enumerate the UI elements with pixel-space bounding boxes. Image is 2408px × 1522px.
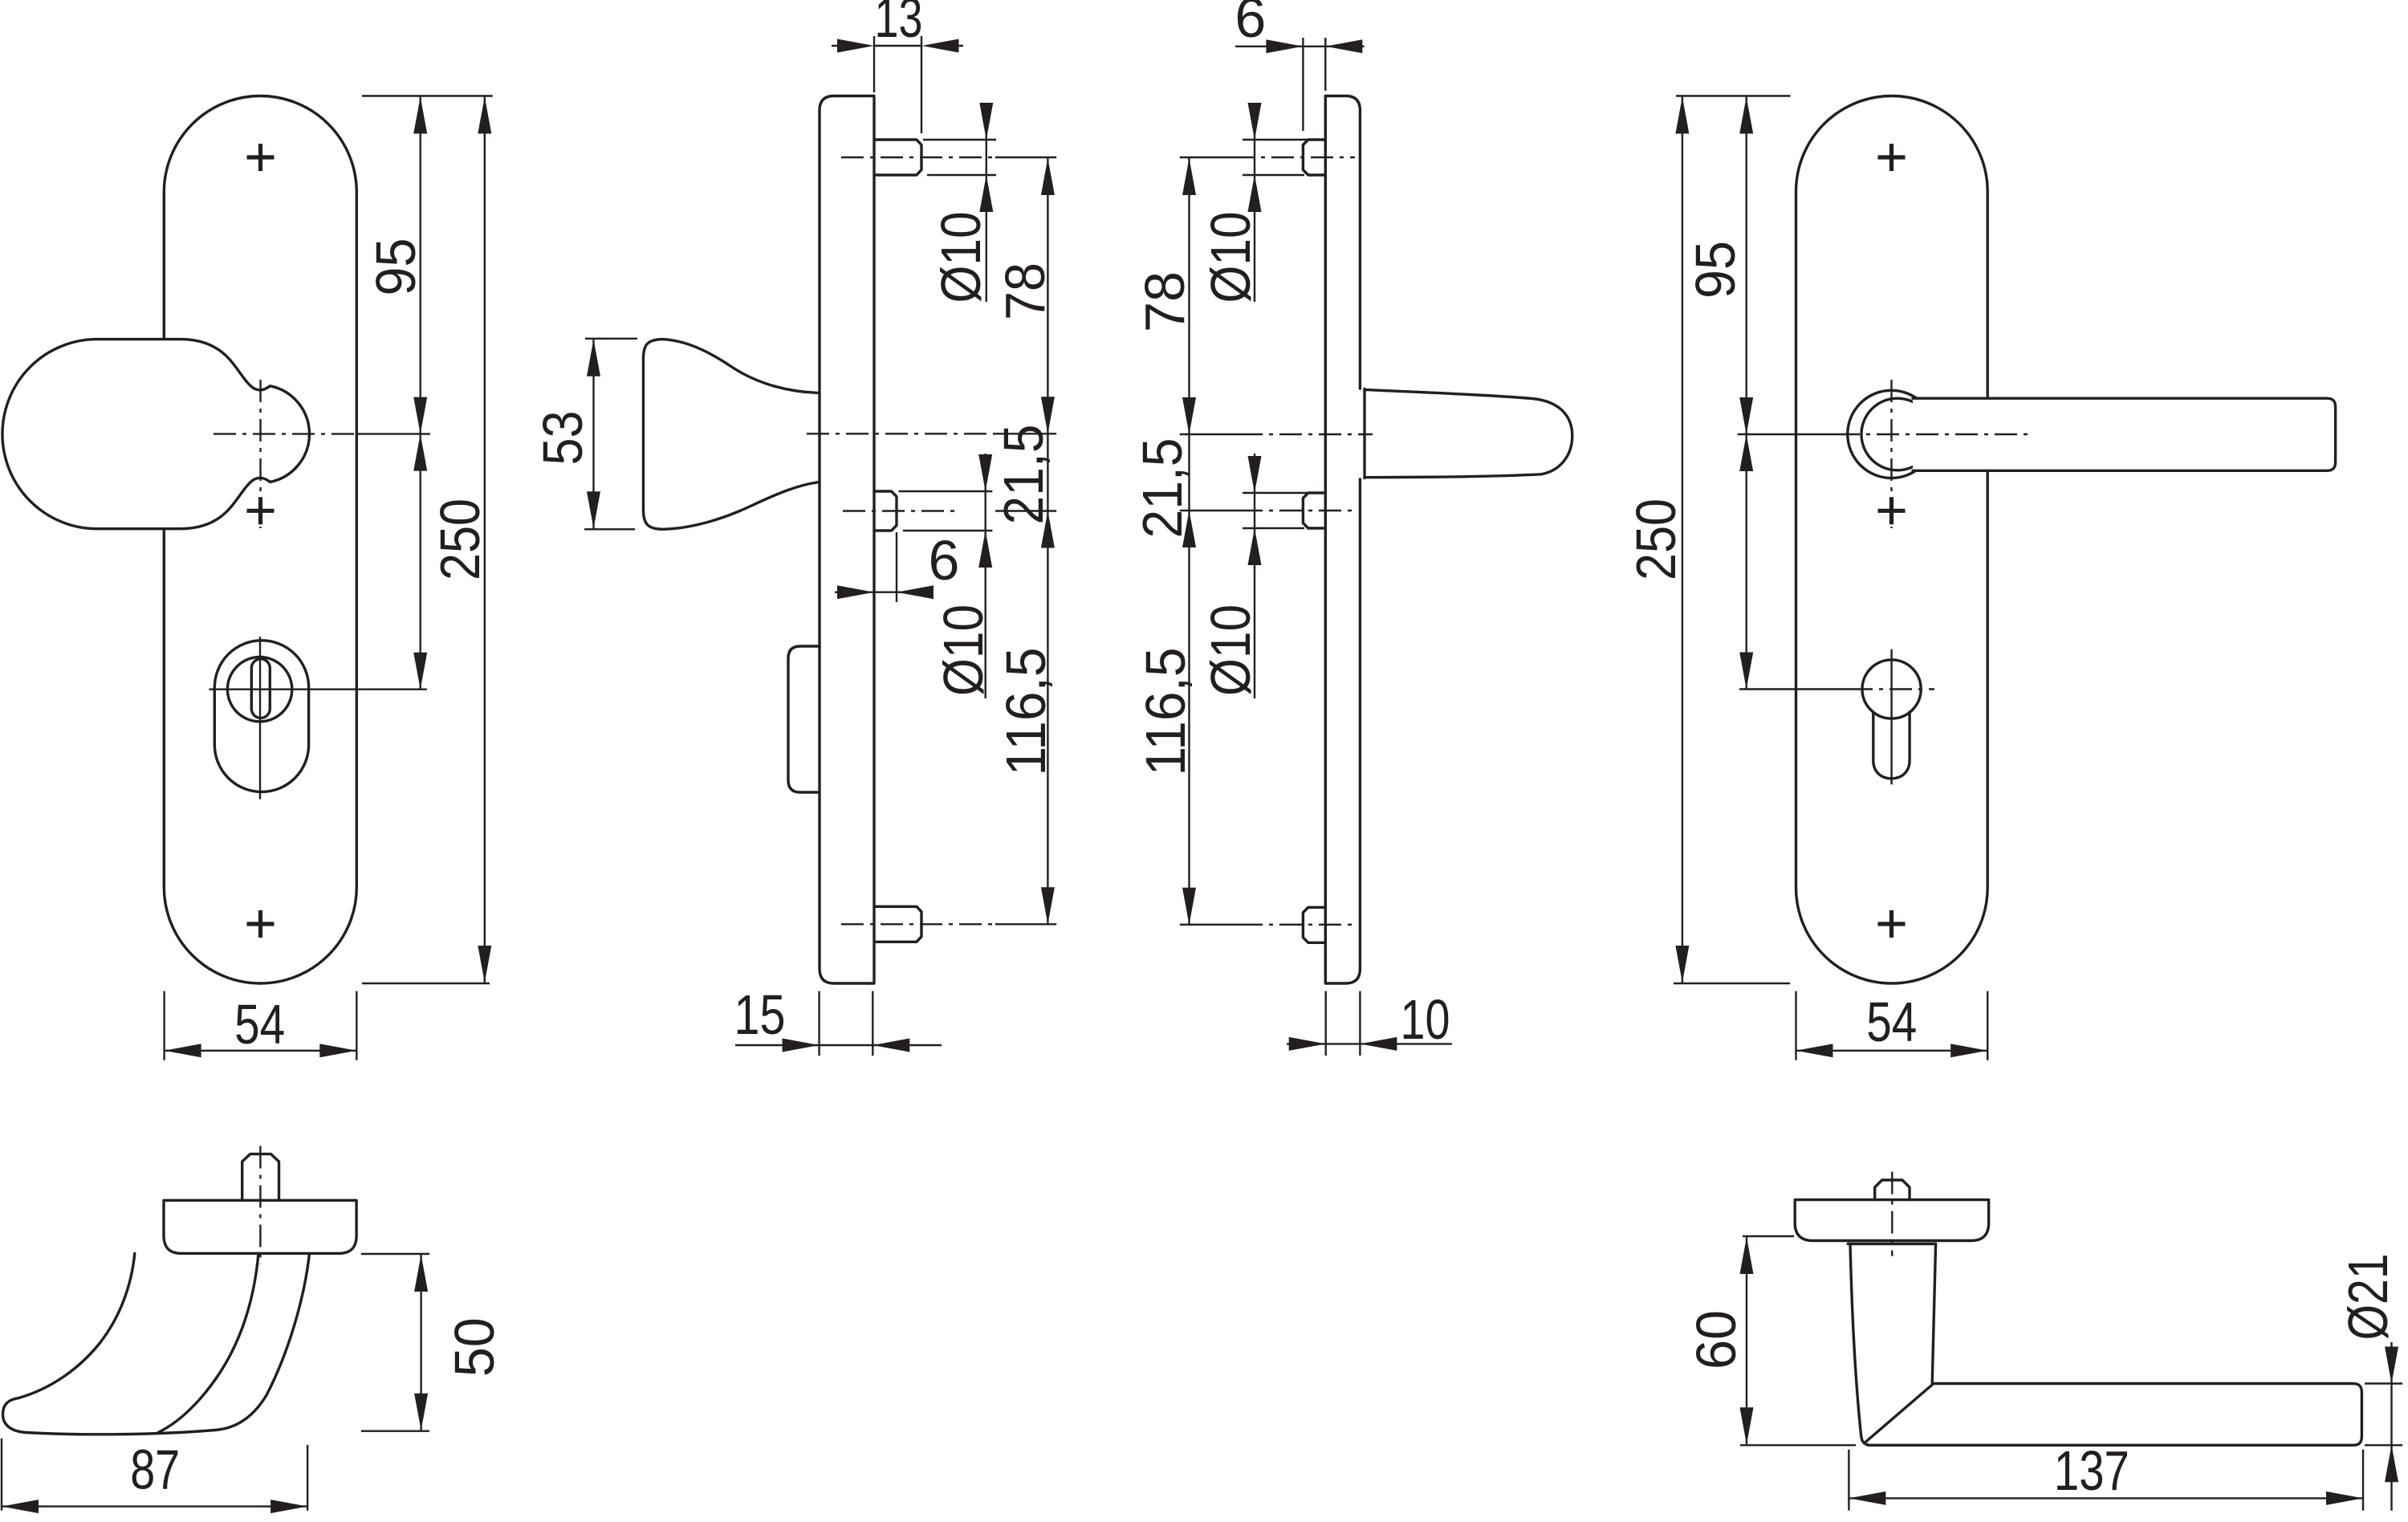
svg-text:Ø21: Ø21 bbox=[2337, 1254, 2399, 1341]
svg-text:78: 78 bbox=[1133, 271, 1196, 332]
svg-text:Ø10: Ø10 bbox=[932, 604, 995, 696]
svg-text:Ø10: Ø10 bbox=[1199, 604, 1262, 696]
svg-text:6: 6 bbox=[929, 529, 960, 592]
svg-text:78: 78 bbox=[994, 262, 1056, 320]
svg-text:250: 250 bbox=[429, 499, 491, 580]
svg-text:137: 137 bbox=[2054, 1439, 2129, 1502]
svg-text:15: 15 bbox=[734, 983, 786, 1046]
svg-text:250: 250 bbox=[1625, 499, 1687, 580]
svg-text:Ø10: Ø10 bbox=[1199, 212, 1262, 303]
svg-text:13: 13 bbox=[875, 0, 923, 49]
svg-text:116,5: 116,5 bbox=[995, 648, 1057, 776]
svg-text:50: 50 bbox=[443, 1317, 506, 1377]
svg-text:60: 60 bbox=[1685, 1310, 1747, 1369]
svg-text:116,5: 116,5 bbox=[1134, 648, 1197, 776]
svg-text:10: 10 bbox=[1401, 988, 1450, 1051]
svg-text:21,5: 21,5 bbox=[992, 425, 1055, 525]
svg-text:6: 6 bbox=[1235, 0, 1266, 49]
svg-text:95: 95 bbox=[1684, 241, 1747, 299]
svg-text:54: 54 bbox=[234, 993, 285, 1056]
svg-text:54: 54 bbox=[1866, 991, 1917, 1053]
svg-text:87: 87 bbox=[130, 1439, 180, 1501]
svg-text:53: 53 bbox=[531, 411, 594, 466]
svg-text:21,5: 21,5 bbox=[1131, 438, 1194, 539]
svg-text:Ø10: Ø10 bbox=[929, 212, 992, 303]
svg-text:95: 95 bbox=[364, 238, 427, 296]
